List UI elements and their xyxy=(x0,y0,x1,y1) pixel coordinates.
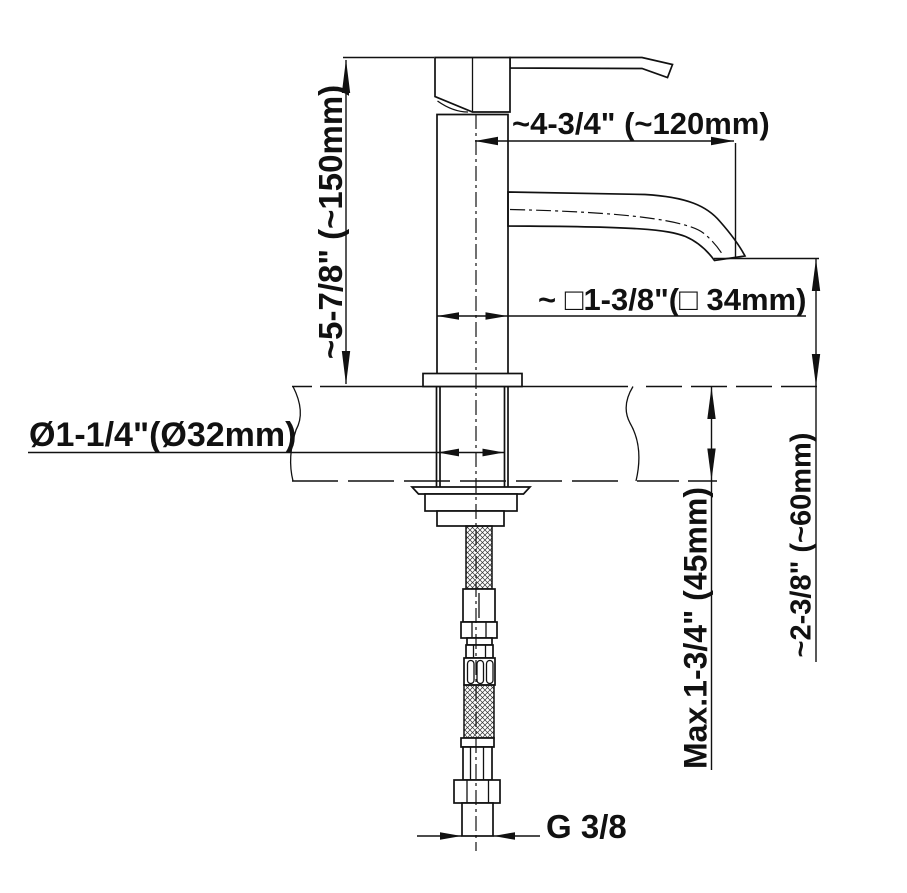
body-outline xyxy=(437,115,508,374)
arrow-down-icon xyxy=(812,354,820,386)
dim-hole-diameter: Ø1-1/4"(Ø32mm) xyxy=(28,416,504,456)
faucet-handle-assembly xyxy=(435,58,673,113)
arrow-right-icon xyxy=(440,832,462,840)
handle-lever xyxy=(510,58,673,78)
arrow-right-icon xyxy=(486,312,508,320)
technical-drawing-canvas: ~5-7/8" (~150mm) ~4-3/4" (~120mm) ~ □1-3… xyxy=(0,0,907,893)
dim-body-width: ~ □1-3/8"(□ 34mm) xyxy=(437,282,806,320)
arrow-left-icon xyxy=(437,312,459,320)
dim-body-width-label: ~ □1-3/8"(□ 34mm) xyxy=(538,282,806,317)
hose-ring xyxy=(466,645,493,658)
faucet-body xyxy=(423,115,522,387)
arrow-left-icon xyxy=(475,137,498,145)
arrow-down-icon xyxy=(707,449,715,481)
arrow-left-icon xyxy=(494,832,516,840)
arrow-up-icon xyxy=(812,259,820,291)
dim-spout-height: ~2-3/8" (~60mm) xyxy=(714,259,820,663)
fitting-body xyxy=(463,747,492,780)
counter-right-break-line xyxy=(626,387,639,482)
mounting-washer xyxy=(412,487,530,494)
dim-deck-thickness-label: Max.1-3/4" (45mm) xyxy=(678,487,714,769)
arrow-up-icon xyxy=(707,387,715,419)
dim-spout-height-label: ~2-3/8" (~60mm) xyxy=(786,433,818,658)
hose-ferrule xyxy=(461,738,494,747)
dim-total-height-label: ~5-7/8" (~150mm) xyxy=(312,85,349,359)
hose-neck xyxy=(467,638,492,645)
dim-hole-diameter-label: Ø1-1/4"(Ø32mm) xyxy=(29,416,296,454)
braided-hose-upper xyxy=(466,526,492,589)
dim-deck-thickness: Max.1-3/4" (45mm) xyxy=(678,387,716,771)
hose-hex-ring xyxy=(461,622,497,638)
fitting-hex-nut xyxy=(454,780,500,803)
shank-collar xyxy=(437,511,504,526)
counter-deck xyxy=(291,387,818,482)
hose-knurled-grip xyxy=(464,658,495,685)
faucet-spout xyxy=(508,192,745,261)
faucet-dimension-drawing: ~5-7/8" (~150mm) ~4-3/4" (~120mm) ~ □1-3… xyxy=(0,0,907,893)
mounting-nut xyxy=(425,494,517,511)
dim-spout-reach-label: ~4-3/4" (~120mm) xyxy=(512,106,770,141)
base-flange xyxy=(423,374,522,387)
arrow-right-icon xyxy=(483,449,505,457)
dim-total-height: ~5-7/8" (~150mm) xyxy=(312,58,434,385)
thread-end xyxy=(462,803,493,836)
dim-thread-size: G 3/8 xyxy=(417,808,627,845)
dim-thread-size-label: G 3/8 xyxy=(546,808,627,845)
mounting-shank xyxy=(412,387,530,527)
supply-hose xyxy=(454,526,500,836)
braided-hose-lower xyxy=(464,685,494,738)
